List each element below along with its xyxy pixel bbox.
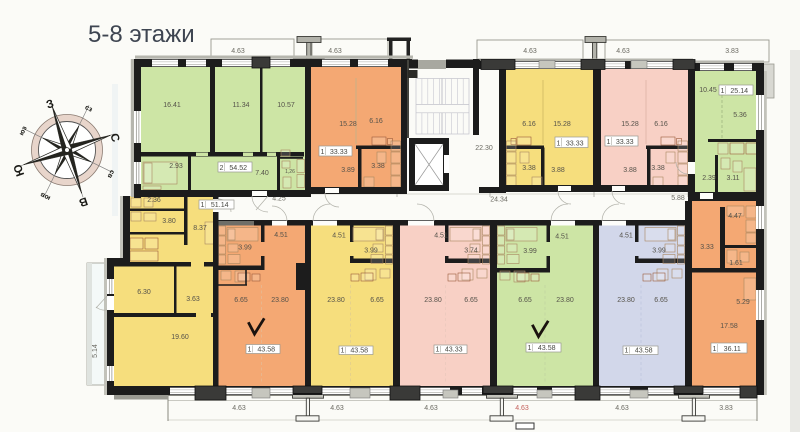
svg-text:3.99: 3.99 [364,248,378,255]
svg-text:3.63: 3.63 [186,296,200,303]
svg-text:3.83: 3.83 [725,48,739,55]
svg-text:1: 1 [557,139,561,147]
svg-text:6.65: 6.65 [464,297,478,304]
svg-text:43.58: 43.58 [350,346,368,354]
svg-text:16.41: 16.41 [163,102,181,109]
svg-text:1: 1 [721,87,725,95]
svg-text:2.93: 2.93 [169,163,183,170]
svg-text:3.83: 3.83 [719,405,733,412]
svg-text:1: 1 [201,201,205,209]
svg-text:3.99: 3.99 [238,245,252,252]
svg-text:6.16: 6.16 [369,118,383,125]
svg-text:15.28: 15.28 [339,121,357,128]
svg-text:19.60: 19.60 [171,334,189,341]
svg-text:25.14: 25.14 [730,87,748,95]
svg-text:3.99: 3.99 [652,248,666,255]
svg-text:1: 1 [321,148,325,156]
svg-text:23.80: 23.80 [327,297,345,304]
svg-text:6.65: 6.65 [370,297,384,304]
svg-text:54.52: 54.52 [229,164,247,172]
svg-text:10.57: 10.57 [277,102,295,109]
svg-text:3.38: 3.38 [651,165,665,172]
svg-text:1: 1 [625,346,629,354]
svg-text:5.36: 5.36 [733,112,747,119]
svg-text:6.30: 6.30 [137,289,151,296]
svg-text:6.65: 6.65 [654,297,668,304]
svg-text:4.63: 4.63 [523,48,537,55]
svg-text:1: 1 [248,345,252,353]
svg-text:4.51: 4.51 [332,233,346,240]
svg-text:36.11: 36.11 [724,345,741,353]
svg-text:6.16: 6.16 [522,121,536,128]
svg-text:2.36: 2.36 [147,197,161,204]
svg-text:1: 1 [341,346,345,354]
svg-text:5-8 этажи: 5-8 этажи [88,21,195,48]
svg-text:33.33: 33.33 [566,139,584,147]
svg-text:1: 1 [607,138,611,146]
svg-text:1.61: 1.61 [729,260,743,267]
svg-text:4.51: 4.51 [619,233,633,240]
svg-text:3.88: 3.88 [623,167,637,174]
svg-text:24.34: 24.34 [490,197,508,204]
svg-text:17.58: 17.58 [720,323,738,330]
svg-text:4.51: 4.51 [274,232,288,239]
svg-text:4.51: 4.51 [555,234,569,241]
svg-text:15.28: 15.28 [621,121,639,128]
svg-text:4.63: 4.63 [616,48,630,55]
svg-text:43.33: 43.33 [445,345,463,353]
svg-text:5.88: 5.88 [671,195,685,202]
svg-text:4.63: 4.63 [615,405,629,412]
svg-text:6.65: 6.65 [518,297,532,304]
svg-text:1: 1 [528,344,532,352]
svg-text:3.89: 3.89 [341,167,355,174]
svg-text:11.34: 11.34 [233,102,250,109]
svg-text:5.14: 5.14 [92,344,99,358]
svg-text:6.16: 6.16 [654,121,668,128]
svg-text:5.29: 5.29 [736,299,750,306]
svg-text:3.38: 3.38 [371,163,385,170]
svg-text:4.63: 4.63 [328,48,342,55]
svg-text:43.58: 43.58 [635,346,653,354]
svg-text:4.47: 4.47 [728,213,742,220]
svg-text:23.80: 23.80 [556,297,574,304]
svg-text:4.63: 4.63 [424,405,438,412]
svg-text:4.51: 4.51 [434,233,448,240]
svg-text:3.11: 3.11 [726,175,739,182]
svg-text:3.80: 3.80 [162,218,176,225]
svg-text:10.45: 10.45 [699,87,717,94]
svg-text:23.80: 23.80 [271,297,289,304]
svg-text:4.63: 4.63 [231,48,245,55]
svg-text:4.63: 4.63 [515,405,529,412]
svg-text:23.80: 23.80 [424,297,442,304]
svg-text:3.88: 3.88 [551,167,565,174]
svg-text:3.33: 3.33 [700,244,714,251]
svg-text:8.37: 8.37 [193,225,207,232]
svg-text:43.58: 43.58 [257,345,275,353]
svg-text:1: 1 [436,345,440,353]
svg-text:1: 1 [713,345,717,353]
svg-text:2.39: 2.39 [702,175,716,182]
svg-text:1,26: 1,26 [285,169,295,175]
svg-text:15.28: 15.28 [553,121,571,128]
svg-text:43.58: 43.58 [538,344,556,352]
svg-text:22.30: 22.30 [475,145,493,152]
svg-text:33.33: 33.33 [330,148,348,156]
svg-text:3.99: 3.99 [523,248,537,255]
svg-text:4.63: 4.63 [232,405,246,412]
svg-text:23.80: 23.80 [617,297,635,304]
svg-text:51.14: 51.14 [211,201,229,209]
svg-text:3.38: 3.38 [522,165,536,172]
svg-text:33.33: 33.33 [616,138,634,146]
svg-text:6.65: 6.65 [234,297,248,304]
svg-text:2: 2 [220,164,224,172]
svg-text:4.63: 4.63 [330,405,344,412]
svg-text:3.74: 3.74 [464,248,478,255]
svg-text:7.40: 7.40 [255,170,269,177]
